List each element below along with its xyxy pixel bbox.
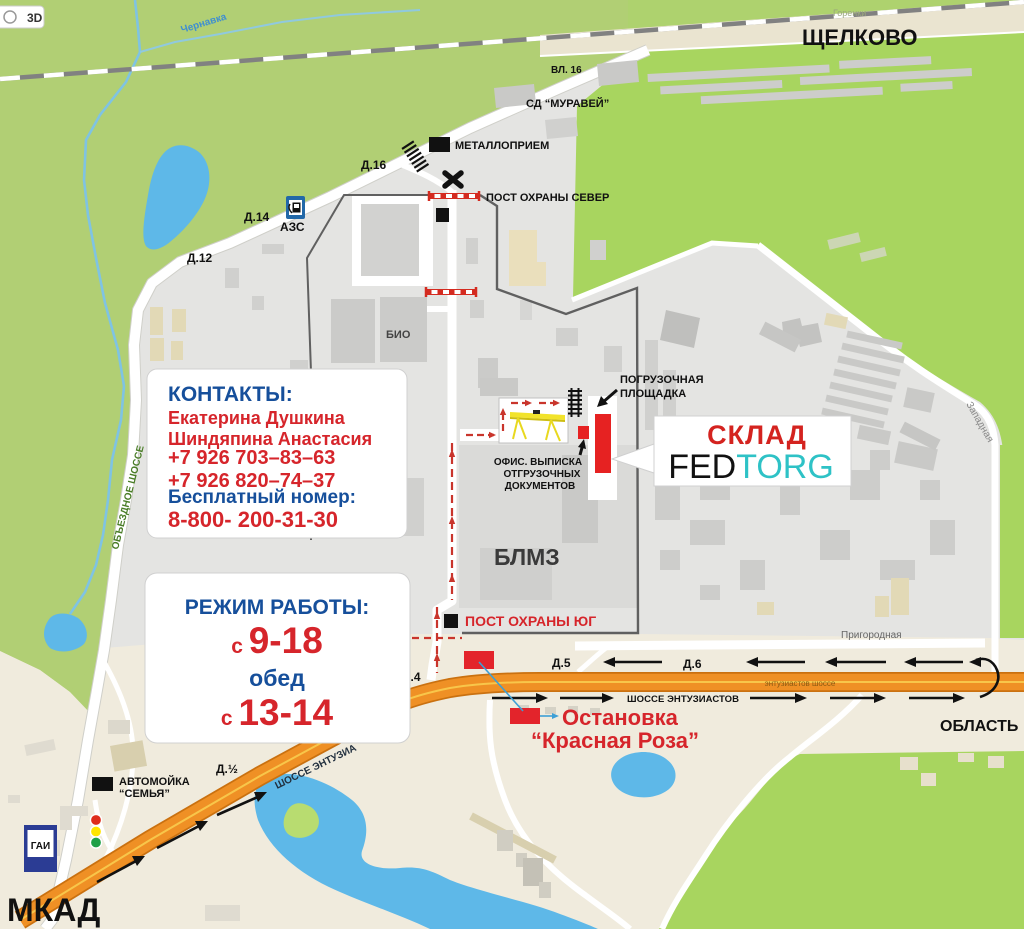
svg-text:АЗС: АЗС [280, 220, 305, 234]
svg-text:Д.½: Д.½ [216, 762, 238, 776]
svg-text:Остановка: Остановка [562, 705, 679, 730]
svg-text:Шиндяпина Анастасия: Шиндяпина Анастасия [168, 429, 372, 449]
svg-text:Екатерина Душкина: Екатерина Душкина [168, 408, 346, 428]
svg-text:БЛМЗ: БЛМЗ [494, 544, 560, 570]
svg-text:энтузиастов шоссе: энтузиастов шоссе [765, 679, 836, 688]
svg-text:ПОСТ ОХРАНЫ СЕВЕР: ПОСТ ОХРАНЫ СЕВЕР [486, 192, 609, 204]
svg-text:ШОССЕ ЭНТУЗИАСТОВ: ШОССЕ ЭНТУЗИАСТОВ [627, 694, 739, 705]
svg-text:FEDTORG: FEDTORG [668, 448, 834, 486]
svg-text:8-800- 200-31-30: 8-800- 200-31-30 [168, 507, 338, 532]
svg-text:“СЕМЬЯ”: “СЕМЬЯ” [119, 788, 170, 800]
svg-text:Горенки: Горенки [833, 8, 866, 18]
svg-text:ПОСТ ОХРАНЫ ЮГ: ПОСТ ОХРАНЫ ЮГ [465, 613, 596, 629]
svg-text:ПЛОЩАДКА: ПЛОЩАДКА [620, 388, 686, 400]
svg-text:“Красная Роза”: “Красная Роза” [531, 728, 699, 753]
svg-text:обед: обед [249, 665, 305, 691]
svg-text:ПОГРУЗОЧНАЯ: ПОГРУЗОЧНАЯ [620, 374, 704, 386]
svg-text:Д.16: Д.16 [361, 158, 387, 172]
svg-text:с 13-14: с 13-14 [221, 692, 334, 733]
svg-text:Пригородная: Пригородная [841, 630, 902, 641]
svg-text:Д.5: Д.5 [552, 656, 571, 670]
svg-text:СКЛАД: СКЛАД [707, 420, 807, 450]
svg-text:РЕЖИМ РАБОТЫ:: РЕЖИМ РАБОТЫ: [185, 596, 370, 619]
svg-text:ГАИ: ГАИ [31, 841, 50, 852]
svg-text:ОТГРУЗОЧНЫХ: ОТГРУЗОЧНЫХ [504, 469, 581, 480]
svg-text:Д.6: Д.6 [683, 657, 702, 671]
svg-text:МЕТАЛЛОПРИЕМ: МЕТАЛЛОПРИЕМ [455, 140, 549, 152]
svg-text:3D: 3D [27, 11, 43, 25]
svg-text:МКАД: МКАД [7, 892, 100, 928]
svg-text:Д.14: Д.14 [244, 210, 270, 224]
svg-text:ЩЕЛКОВО: ЩЕЛКОВО [802, 25, 918, 50]
svg-text:ДОКУМЕНТОВ: ДОКУМЕНТОВ [505, 481, 576, 492]
svg-text:ВЛ. 16: ВЛ. 16 [551, 65, 582, 76]
svg-text:СД “МУРАВЕЙ”: СД “МУРАВЕЙ” [526, 97, 609, 110]
svg-text:Бесплатный номер:: Бесплатный номер: [168, 487, 356, 508]
svg-text:ОФИС. ВЫПИСКА: ОФИС. ВЫПИСКА [494, 457, 582, 468]
svg-text:АВТОМОЙКА: АВТОМОЙКА [119, 775, 190, 788]
svg-text:+7 926 703–83–63: +7 926 703–83–63 [168, 447, 335, 469]
svg-text:Д.12: Д.12 [187, 251, 213, 265]
svg-text:ОБЛАСТЬ: ОБЛАСТЬ [940, 718, 1018, 735]
svg-text:КОНТАКТЫ:: КОНТАКТЫ: [168, 383, 293, 406]
svg-text:БИО: БИО [386, 329, 411, 341]
